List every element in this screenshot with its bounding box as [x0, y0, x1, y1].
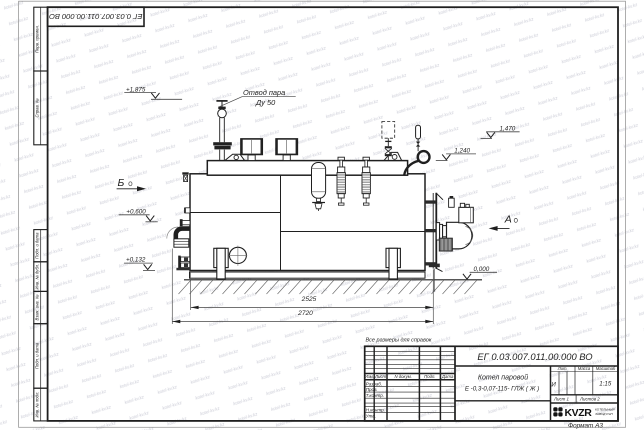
svg-text:Пров.: Пров. — [366, 387, 378, 392]
svg-text:ЕГ 0.03.007.011.00.000 ВО: ЕГ 0.03.007.011.00.000 ВО — [477, 351, 593, 362]
svg-text:Утв.: Утв. — [366, 414, 376, 419]
svg-text:Разраб.: Разраб. — [366, 381, 382, 386]
svg-text:+0,132: +0,132 — [126, 257, 146, 264]
svg-text:Б: Б — [118, 177, 125, 189]
svg-text:0,000: 0,000 — [474, 266, 490, 273]
svg-text:2720: 2720 — [297, 310, 313, 317]
svg-text:Масштаб: Масштаб — [596, 366, 616, 371]
svg-text:Инв. № подл.: Инв. № подл. — [35, 392, 40, 418]
svg-text:Справ. №: Справ. № — [35, 98, 40, 117]
svg-text:Котел паровой: Котел паровой — [478, 374, 528, 382]
svg-text:Дата: Дата — [441, 374, 454, 379]
svg-text:Перв. примен.: Перв. примен. — [35, 25, 40, 53]
svg-text:Ду 50: Ду 50 — [255, 98, 276, 107]
svg-text:Подп. и дата: Подп. и дата — [35, 342, 40, 369]
svg-text:Все размеры для справок: Все размеры для справок — [366, 337, 432, 343]
svg-text:Взам. инв. №: Взам. инв. № — [35, 294, 40, 320]
svg-text:Е -0,3-0,07-115- ГЛЖ ( Ж ): Е -0,3-0,07-115- ГЛЖ ( Ж ) — [465, 386, 539, 393]
svg-text:N докум.: N докум. — [395, 374, 412, 379]
svg-text:KVZR: KVZR — [565, 407, 593, 419]
svg-text:Лист: Лист — [374, 374, 386, 379]
svg-text:ЕГ 0.03.007.011.00.000 ВО: ЕГ 0.03.007.011.00.000 ВО — [49, 12, 142, 21]
svg-text:Н.контр.: Н.контр. — [366, 408, 385, 413]
svg-text:И: И — [551, 382, 556, 389]
svg-text:Т.контр.: Т.контр. — [366, 393, 384, 398]
svg-text:А: А — [504, 214, 512, 226]
svg-text:Лист 1: Лист 1 — [553, 397, 570, 402]
svg-text:ЗАВОД РЭП: ЗАВОД РЭП — [595, 412, 614, 416]
svg-text:1:15: 1:15 — [599, 381, 612, 388]
svg-text:1,240: 1,240 — [454, 147, 470, 154]
svg-text:Инв. № дубл.: Инв. № дубл. — [35, 264, 40, 290]
svg-text:Подп.: Подп. — [424, 374, 435, 379]
svg-text:+0,600: +0,600 — [126, 208, 146, 215]
svg-text:Формат А3: Формат А3 — [568, 422, 603, 429]
svg-text:Листов 2: Листов 2 — [579, 397, 600, 402]
svg-text:1,470: 1,470 — [500, 125, 516, 132]
svg-text:Масса: Масса — [578, 366, 591, 371]
svg-text:Лит.: Лит. — [557, 366, 568, 371]
svg-text:Изм.: Изм. — [365, 374, 374, 379]
svg-text:2525: 2525 — [301, 296, 317, 303]
svg-text:Отвод пара: Отвод пара — [243, 88, 285, 97]
svg-text:Подп. и дата: Подп. и дата — [35, 232, 40, 259]
